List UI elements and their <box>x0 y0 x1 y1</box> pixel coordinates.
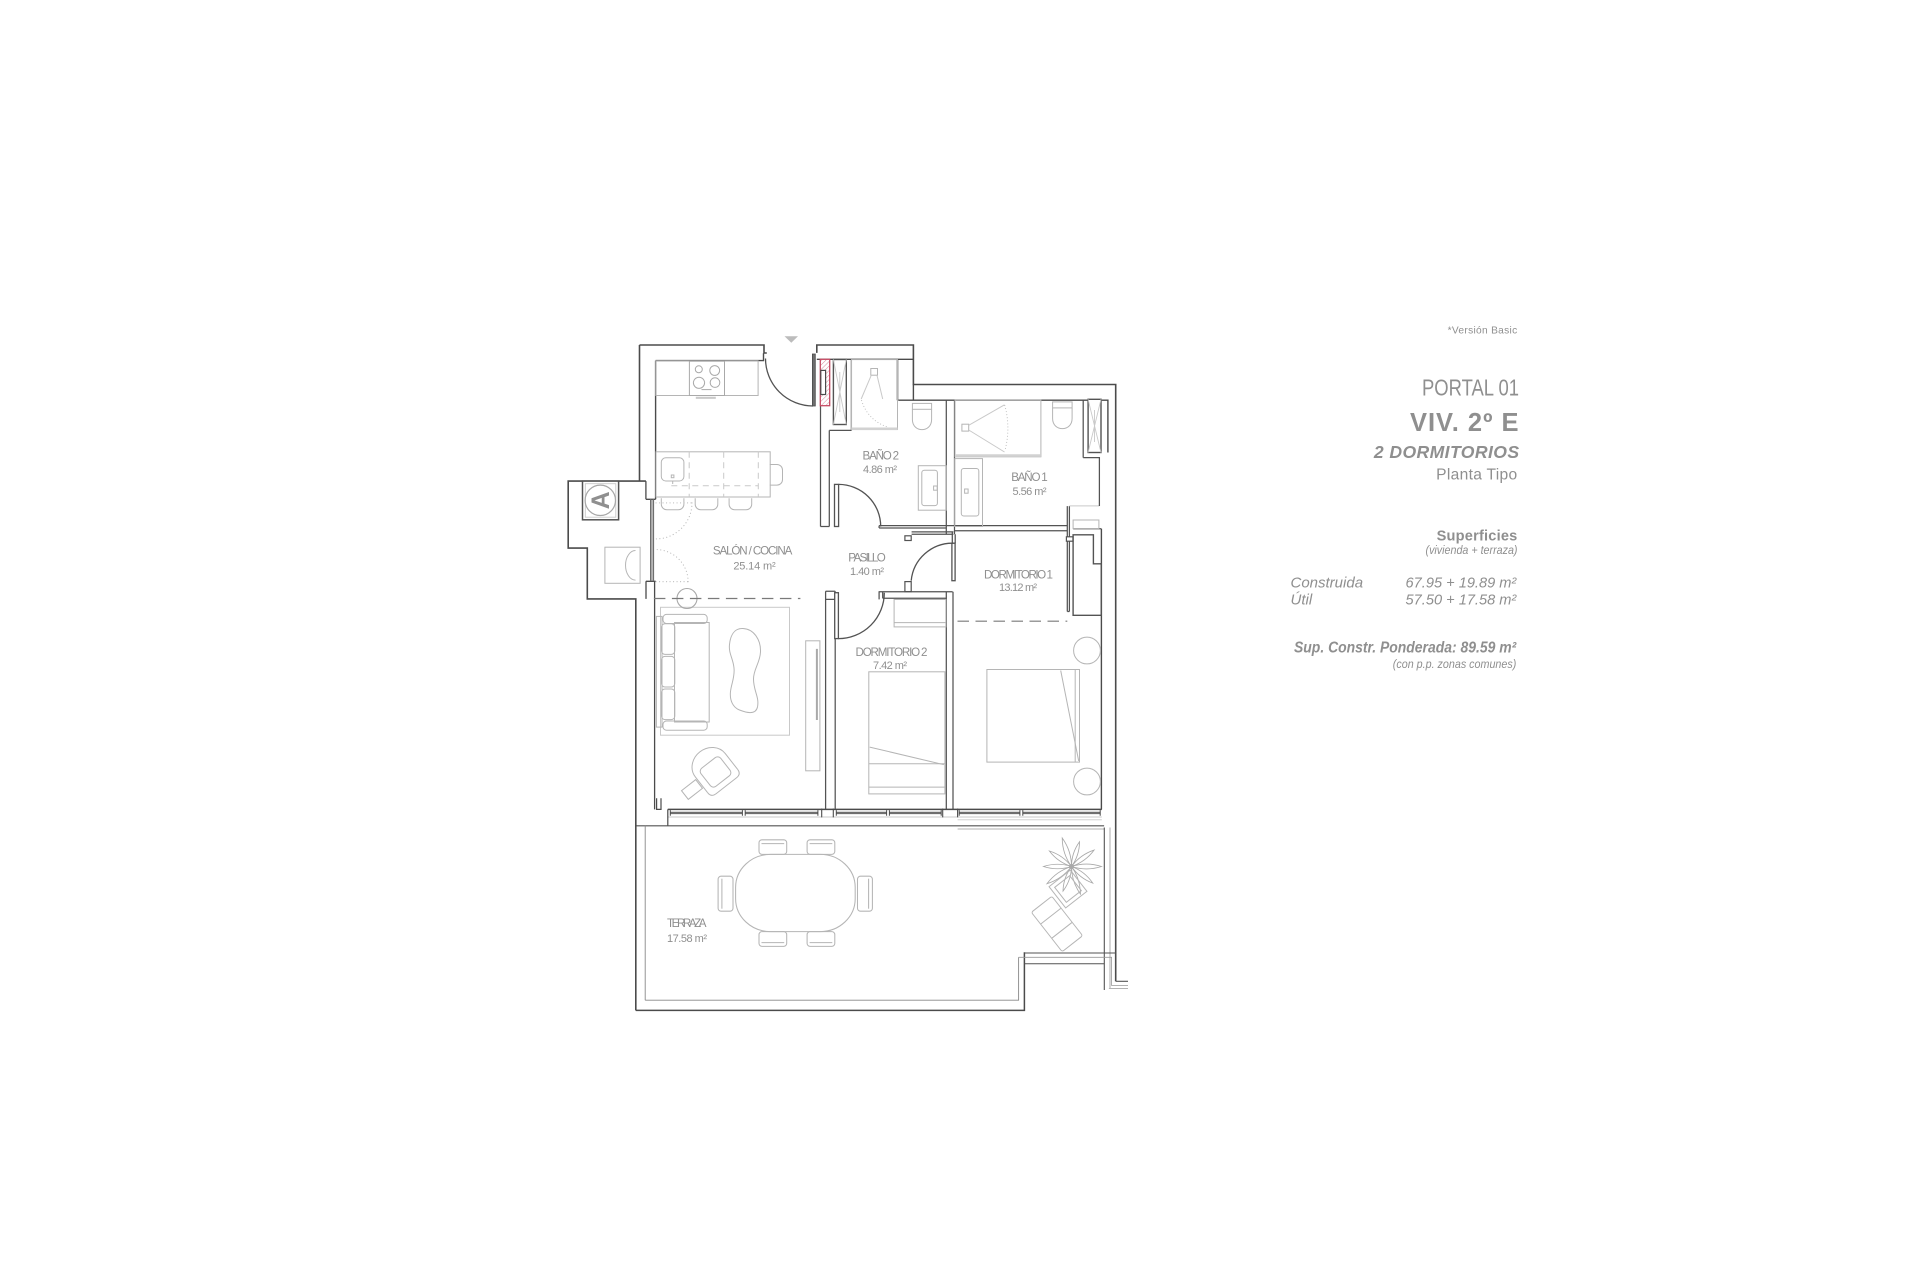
svg-text:Planta Tipo: Planta Tipo <box>1436 467 1517 484</box>
svg-text:PORTAL 01: PORTAL 01 <box>1422 375 1519 401</box>
svg-text:(vivienda + terraza): (vivienda + terraza) <box>1426 544 1518 557</box>
svg-text:BAÑO 2: BAÑO 2 <box>863 450 900 463</box>
svg-text:2 DORMITORIOS: 2 DORMITORIOS <box>1373 442 1520 462</box>
svg-text:(con p.p. zonas comunes): (con p.p. zonas comunes) <box>1393 658 1517 671</box>
svg-text:1.40 m²: 1.40 m² <box>850 566 884 578</box>
svg-text:25.14 m²: 25.14 m² <box>733 561 776 573</box>
svg-text:Construida: Construida <box>1291 574 1364 591</box>
svg-text:DORMITORIO 1: DORMITORIO 1 <box>984 569 1053 582</box>
svg-text:Superficies: Superficies <box>1437 529 1518 545</box>
svg-text:13.12 m²: 13.12 m² <box>999 582 1037 594</box>
svg-text:7.42 m²: 7.42 m² <box>873 660 907 672</box>
svg-text:4.86 m²: 4.86 m² <box>863 464 897 476</box>
svg-text:*Versión Basic: *Versión Basic <box>1448 326 1518 337</box>
svg-text:PASILLO: PASILLO <box>848 552 886 565</box>
svg-text:A: A <box>587 491 615 509</box>
svg-text:VIV. 2º E: VIV. 2º E <box>1410 409 1520 437</box>
svg-text:67.95 + 19.89 m²: 67.95 + 19.89 m² <box>1406 575 1518 591</box>
svg-text:TERRAZA: TERRAZA <box>667 917 707 930</box>
svg-text:57.50 + 17.58 m²: 57.50 + 17.58 m² <box>1406 592 1518 608</box>
svg-text:DORMITORIO 2: DORMITORIO 2 <box>856 646 928 659</box>
svg-text:BAÑO 1: BAÑO 1 <box>1011 471 1048 484</box>
svg-text:5.56 m²: 5.56 m² <box>1013 486 1047 498</box>
svg-text:Útil: Útil <box>1291 591 1313 608</box>
svg-text:Sup. Constr. Ponderada: 89.59: Sup. Constr. Ponderada: 89.59 m² <box>1294 639 1517 656</box>
svg-text:17.58 m²: 17.58 m² <box>667 933 707 945</box>
svg-text:SALÓN / COCINA: SALÓN / COCINA <box>713 545 793 558</box>
